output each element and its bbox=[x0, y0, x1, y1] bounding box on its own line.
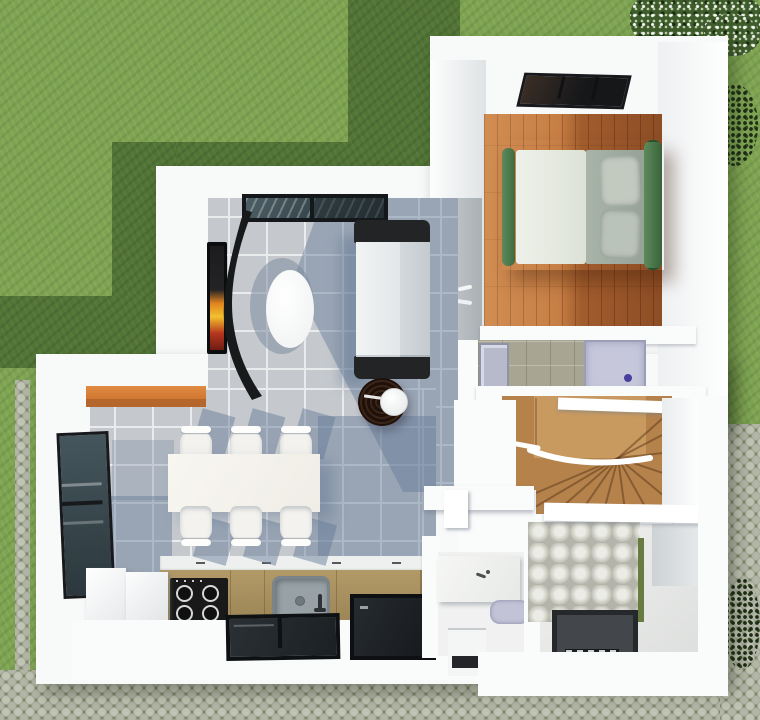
textured-feature-wall bbox=[528, 522, 640, 622]
window-mullion bbox=[557, 77, 565, 99]
vanity-faucet bbox=[486, 570, 490, 574]
dining-chair bbox=[180, 506, 212, 542]
door-handle bbox=[360, 606, 368, 609]
dining-chair bbox=[230, 506, 262, 542]
stair-side-wall bbox=[662, 398, 702, 522]
window-mullion bbox=[62, 500, 102, 506]
floor-shadow bbox=[318, 416, 436, 576]
plate bbox=[380, 388, 408, 416]
burner bbox=[202, 585, 219, 602]
sofa-seat bbox=[356, 242, 402, 357]
ensuite-sink bbox=[479, 343, 509, 391]
chair-back bbox=[181, 539, 211, 546]
bed-pillow bbox=[599, 209, 641, 258]
chair-back bbox=[231, 426, 261, 433]
window-reflection bbox=[62, 482, 102, 487]
living-window-glass bbox=[314, 198, 384, 218]
bedroom-skylight-window bbox=[516, 73, 631, 110]
burner bbox=[176, 585, 193, 602]
sofa-armrest bbox=[354, 356, 430, 379]
chair-back bbox=[281, 426, 311, 433]
glass-divider bbox=[278, 618, 283, 648]
shrub bbox=[724, 578, 760, 670]
cabinet-handle bbox=[332, 562, 341, 564]
sofa bbox=[354, 220, 430, 379]
partition-post bbox=[444, 490, 468, 528]
partition-wall bbox=[424, 486, 534, 510]
dining-table bbox=[168, 454, 320, 512]
window-reflection bbox=[63, 520, 103, 525]
cabinet-handle bbox=[392, 562, 401, 564]
sink-faucet bbox=[314, 608, 326, 612]
bed bbox=[502, 140, 664, 270]
bedroom-east-wall bbox=[658, 42, 728, 424]
breakfast-bar bbox=[86, 386, 206, 399]
chair-back bbox=[181, 426, 211, 433]
cabinet-handle bbox=[196, 562, 205, 564]
wc-vanity bbox=[438, 556, 520, 602]
plant-strip bbox=[638, 538, 644, 622]
floor-shadow bbox=[112, 440, 174, 500]
glass-sheen bbox=[234, 624, 274, 627]
vanity-faucet bbox=[476, 572, 486, 578]
floor-plan-render bbox=[0, 0, 760, 720]
sofa-armrest bbox=[354, 220, 430, 243]
chair-back bbox=[281, 539, 311, 546]
east-outer-wall bbox=[698, 396, 728, 696]
cobblestone-path-left bbox=[15, 380, 30, 692]
dining-chair bbox=[280, 506, 312, 542]
sofa-backrest bbox=[400, 242, 430, 357]
bed-pillow bbox=[599, 155, 641, 206]
shower-drain bbox=[624, 374, 632, 382]
sink-drain bbox=[295, 596, 305, 606]
bed-headboard bbox=[644, 140, 662, 270]
bathroom-top-ledge bbox=[544, 503, 706, 524]
bed-mattress bbox=[516, 150, 586, 264]
chair-back bbox=[231, 539, 261, 546]
window-mullion bbox=[591, 78, 599, 100]
bed-footboard bbox=[502, 148, 515, 266]
floor-glass-panel bbox=[226, 613, 341, 661]
stove-knobs bbox=[176, 580, 206, 582]
bathroom-bottom-wall bbox=[478, 652, 728, 696]
bathroom-right-panel bbox=[652, 524, 704, 586]
oval-coffee-table bbox=[266, 270, 314, 348]
stove-hob bbox=[170, 578, 228, 624]
breakfast-bar-front bbox=[86, 399, 206, 407]
